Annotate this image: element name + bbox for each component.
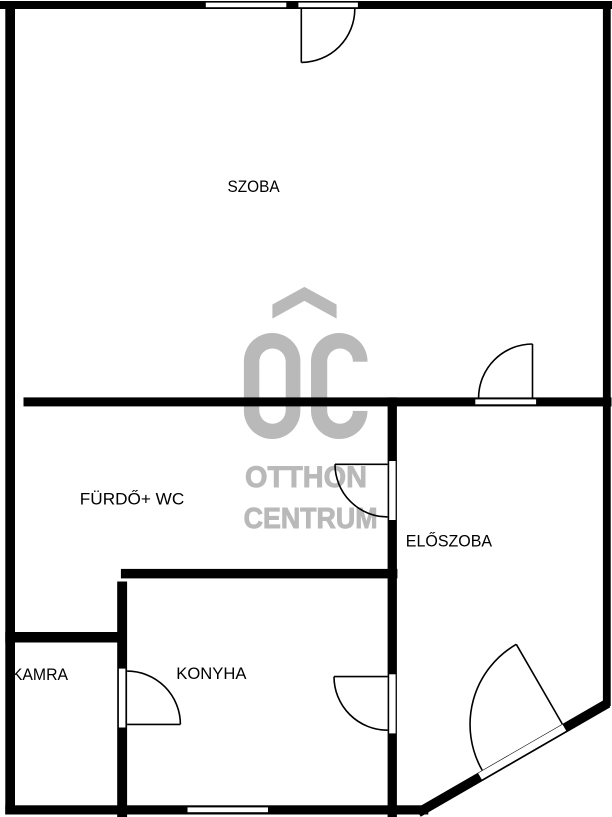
- svg-text:KAMRA: KAMRA: [12, 665, 69, 684]
- svg-text:OTTHON: OTTHON: [245, 461, 367, 494]
- svg-text:ELŐSZOBA: ELŐSZOBA: [406, 532, 493, 551]
- svg-text:SZOBA: SZOBA: [228, 177, 281, 196]
- svg-text:FÜRDŐ+ WC: FÜRDŐ+ WC: [80, 490, 185, 509]
- svg-text:KONYHA: KONYHA: [176, 664, 247, 683]
